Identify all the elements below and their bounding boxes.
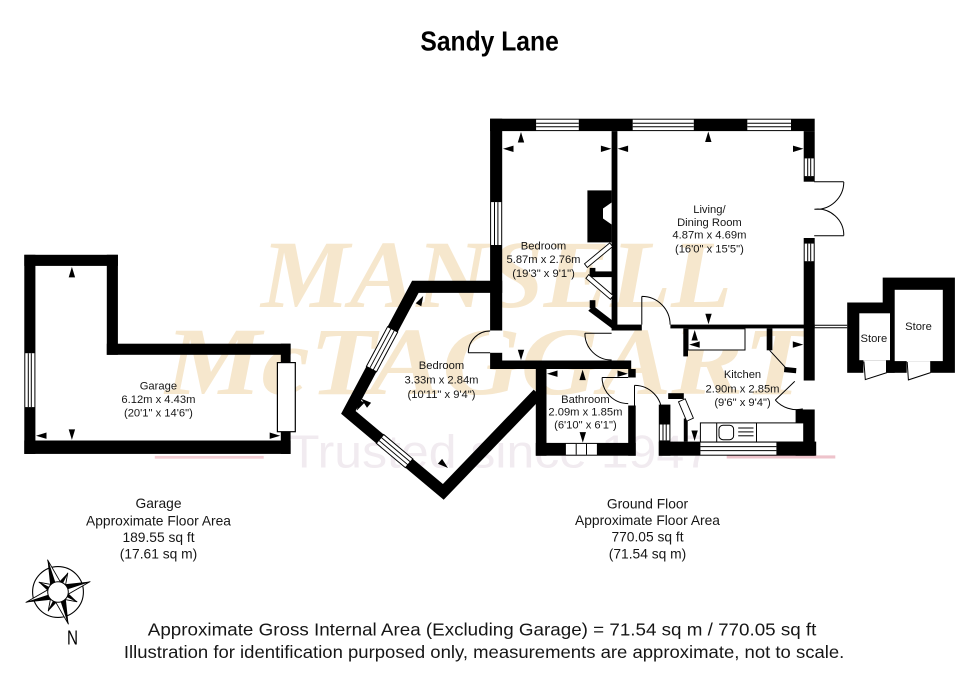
svg-text:(20'1" x 14'6"): (20'1" x 14'6") <box>124 407 193 419</box>
svg-text:Dining Room: Dining Room <box>677 217 742 229</box>
svg-text:Bedroom: Bedroom <box>521 240 566 252</box>
svg-text:N: N <box>67 628 78 650</box>
svg-text:6.12m x 4.43m: 6.12m x 4.43m <box>121 394 195 406</box>
svg-text:Bathroom: Bathroom <box>561 394 610 406</box>
svg-text:770.05 sq ft: 770.05 sq ft <box>611 529 683 544</box>
svg-text:(6'10" x 6'1"): (6'10" x 6'1") <box>554 420 617 432</box>
svg-text:Approximate Floor Area: Approximate Floor Area <box>86 513 231 528</box>
svg-text:Ground Floor: Ground Floor <box>607 496 689 511</box>
svg-text:Store: Store <box>861 333 888 345</box>
svg-text:Approximate Floor Area: Approximate Floor Area <box>575 513 720 528</box>
svg-text:Sandy Lane: Sandy Lane <box>420 26 558 57</box>
svg-text:Kitchen: Kitchen <box>724 369 761 381</box>
svg-text:4.87m x 4.69m: 4.87m x 4.69m <box>672 230 746 242</box>
svg-text:Living/: Living/ <box>693 204 726 216</box>
svg-text:Bedroom: Bedroom <box>419 360 464 372</box>
svg-text:(10'11" x 9'4"): (10'11" x 9'4") <box>408 389 476 401</box>
svg-text:(19'3" x 9'1"): (19'3" x 9'1") <box>512 268 575 280</box>
svg-text:(9'6" x 9'4"): (9'6" x 9'4") <box>714 397 771 409</box>
svg-text:(71.54 sq m): (71.54 sq m) <box>609 547 686 562</box>
svg-text:Illustration for identificatio: Illustration for identification purposed… <box>124 642 844 662</box>
svg-text:(17.61 sq m): (17.61 sq m) <box>120 547 197 562</box>
svg-text:Garage: Garage <box>135 496 181 511</box>
svg-text:Approximate Gross Internal Are: Approximate Gross Internal Area (Excludi… <box>148 619 817 639</box>
svg-text:Store: Store <box>905 321 932 333</box>
svg-text:5.87m x 2.76m: 5.87m x 2.76m <box>507 254 581 266</box>
svg-text:3.33m x 2.84m: 3.33m x 2.84m <box>405 375 479 387</box>
svg-text:(16'0" x 15'5"): (16'0" x 15'5") <box>675 243 744 255</box>
svg-text:2.09m x 1.85m: 2.09m x 1.85m <box>548 407 622 419</box>
svg-text:2.90m x 2.85m: 2.90m x 2.85m <box>706 383 780 395</box>
svg-text:Garage: Garage <box>140 381 177 393</box>
svg-text:189.55 sq ft: 189.55 sq ft <box>122 530 194 545</box>
